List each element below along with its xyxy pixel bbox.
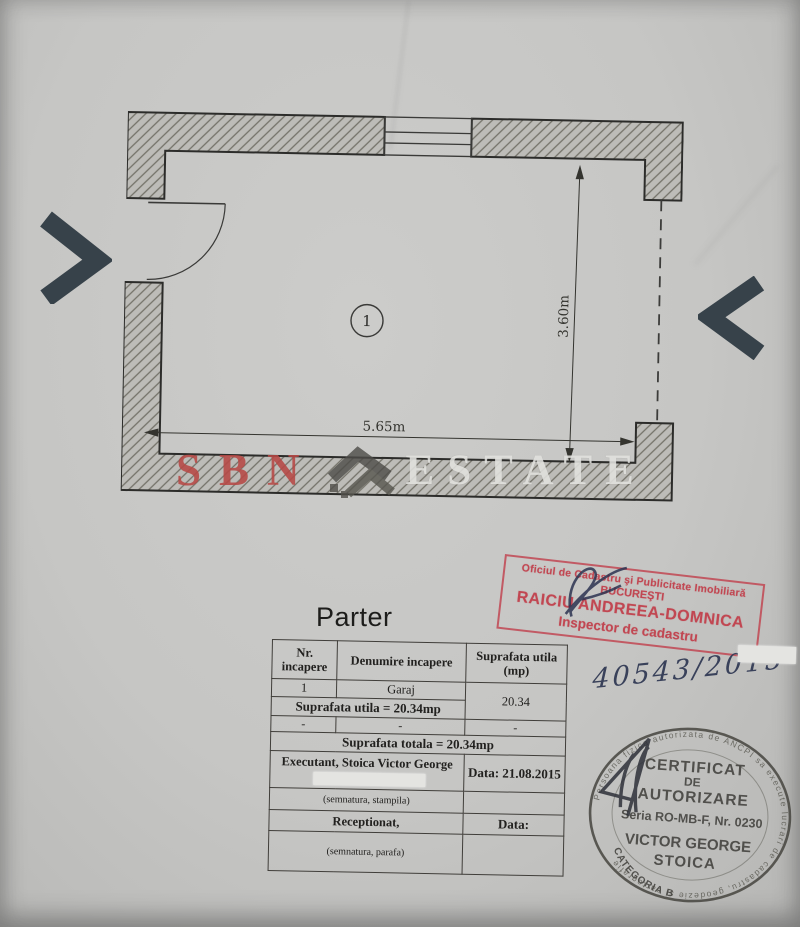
watermark: SBN ESTATE [176, 438, 647, 502]
left-chevron-icon [36, 210, 112, 304]
phone-redaction [313, 772, 425, 787]
table-row-executant: Executant, Stoica Victor George Telef. D… [270, 750, 566, 793]
watermark-sbn: SBN [176, 444, 318, 496]
corner-redaction [738, 645, 797, 664]
stamp-seria: Seria RO-MB-F, Nr. 0230 [621, 807, 763, 831]
wall-top-right [470, 119, 682, 201]
note-parafa: (semnatura, parafa) [268, 830, 463, 874]
header-nr: Nr. incapere [272, 640, 338, 680]
dimension-height-label: 3.60m [556, 295, 573, 338]
stamp-autorizare: AUTORIZARE [637, 785, 749, 810]
wall-top-left [126, 112, 385, 203]
header-denumire: Denumire incapere [337, 641, 467, 682]
empty-cell [463, 791, 564, 815]
executant-phone: Telef. [273, 769, 460, 788]
header-suprafata: Suprafata utila (mp) [466, 643, 568, 684]
door [147, 202, 225, 280]
stamp-de: DE [683, 775, 701, 790]
executant-date: Data: 21.08.2015 [464, 754, 566, 793]
dash-cell: - [271, 715, 336, 732]
window [384, 117, 472, 157]
opening-dashed-line [657, 200, 661, 423]
room-area: 20.34 [465, 682, 567, 721]
page-title: Parter [316, 602, 393, 633]
dimension-width-label: 5.65m [362, 419, 405, 436]
house-roof-icon [324, 444, 396, 502]
area-table: Nr. incapere Denumire incapere Suprafata… [268, 639, 568, 877]
signature-scribble [528, 550, 645, 635]
right-chevron-icon [698, 276, 768, 360]
dimension-height: 3.60m [553, 166, 583, 460]
table-header-row: Nr. incapere Denumire incapere Suprafata… [272, 640, 568, 685]
paper-crease [694, 164, 780, 266]
stamp-victor-george: VICTOR GEORGE [624, 831, 751, 857]
door-leaf [148, 202, 225, 203]
stamp-stoica: STOICA [653, 852, 716, 873]
receptionat-date: Data: [463, 813, 564, 836]
executant-cell: Executant, Stoica Victor George Telef. [270, 750, 465, 791]
dash-cell: - [465, 719, 566, 737]
watermark-estate: ESTATE [406, 446, 647, 495]
table-row-note-parafa: (semnatura, parafa) [268, 830, 564, 876]
room-nr: 1 [271, 679, 336, 698]
room-number: 1 [362, 312, 372, 330]
empty-cell [462, 834, 564, 876]
door-swing-arc [147, 202, 225, 280]
room-number-badge: 1 [351, 304, 384, 337]
certificate-round-stamp: Persoana fizica autorizata de ANCPI sa e… [574, 713, 800, 918]
